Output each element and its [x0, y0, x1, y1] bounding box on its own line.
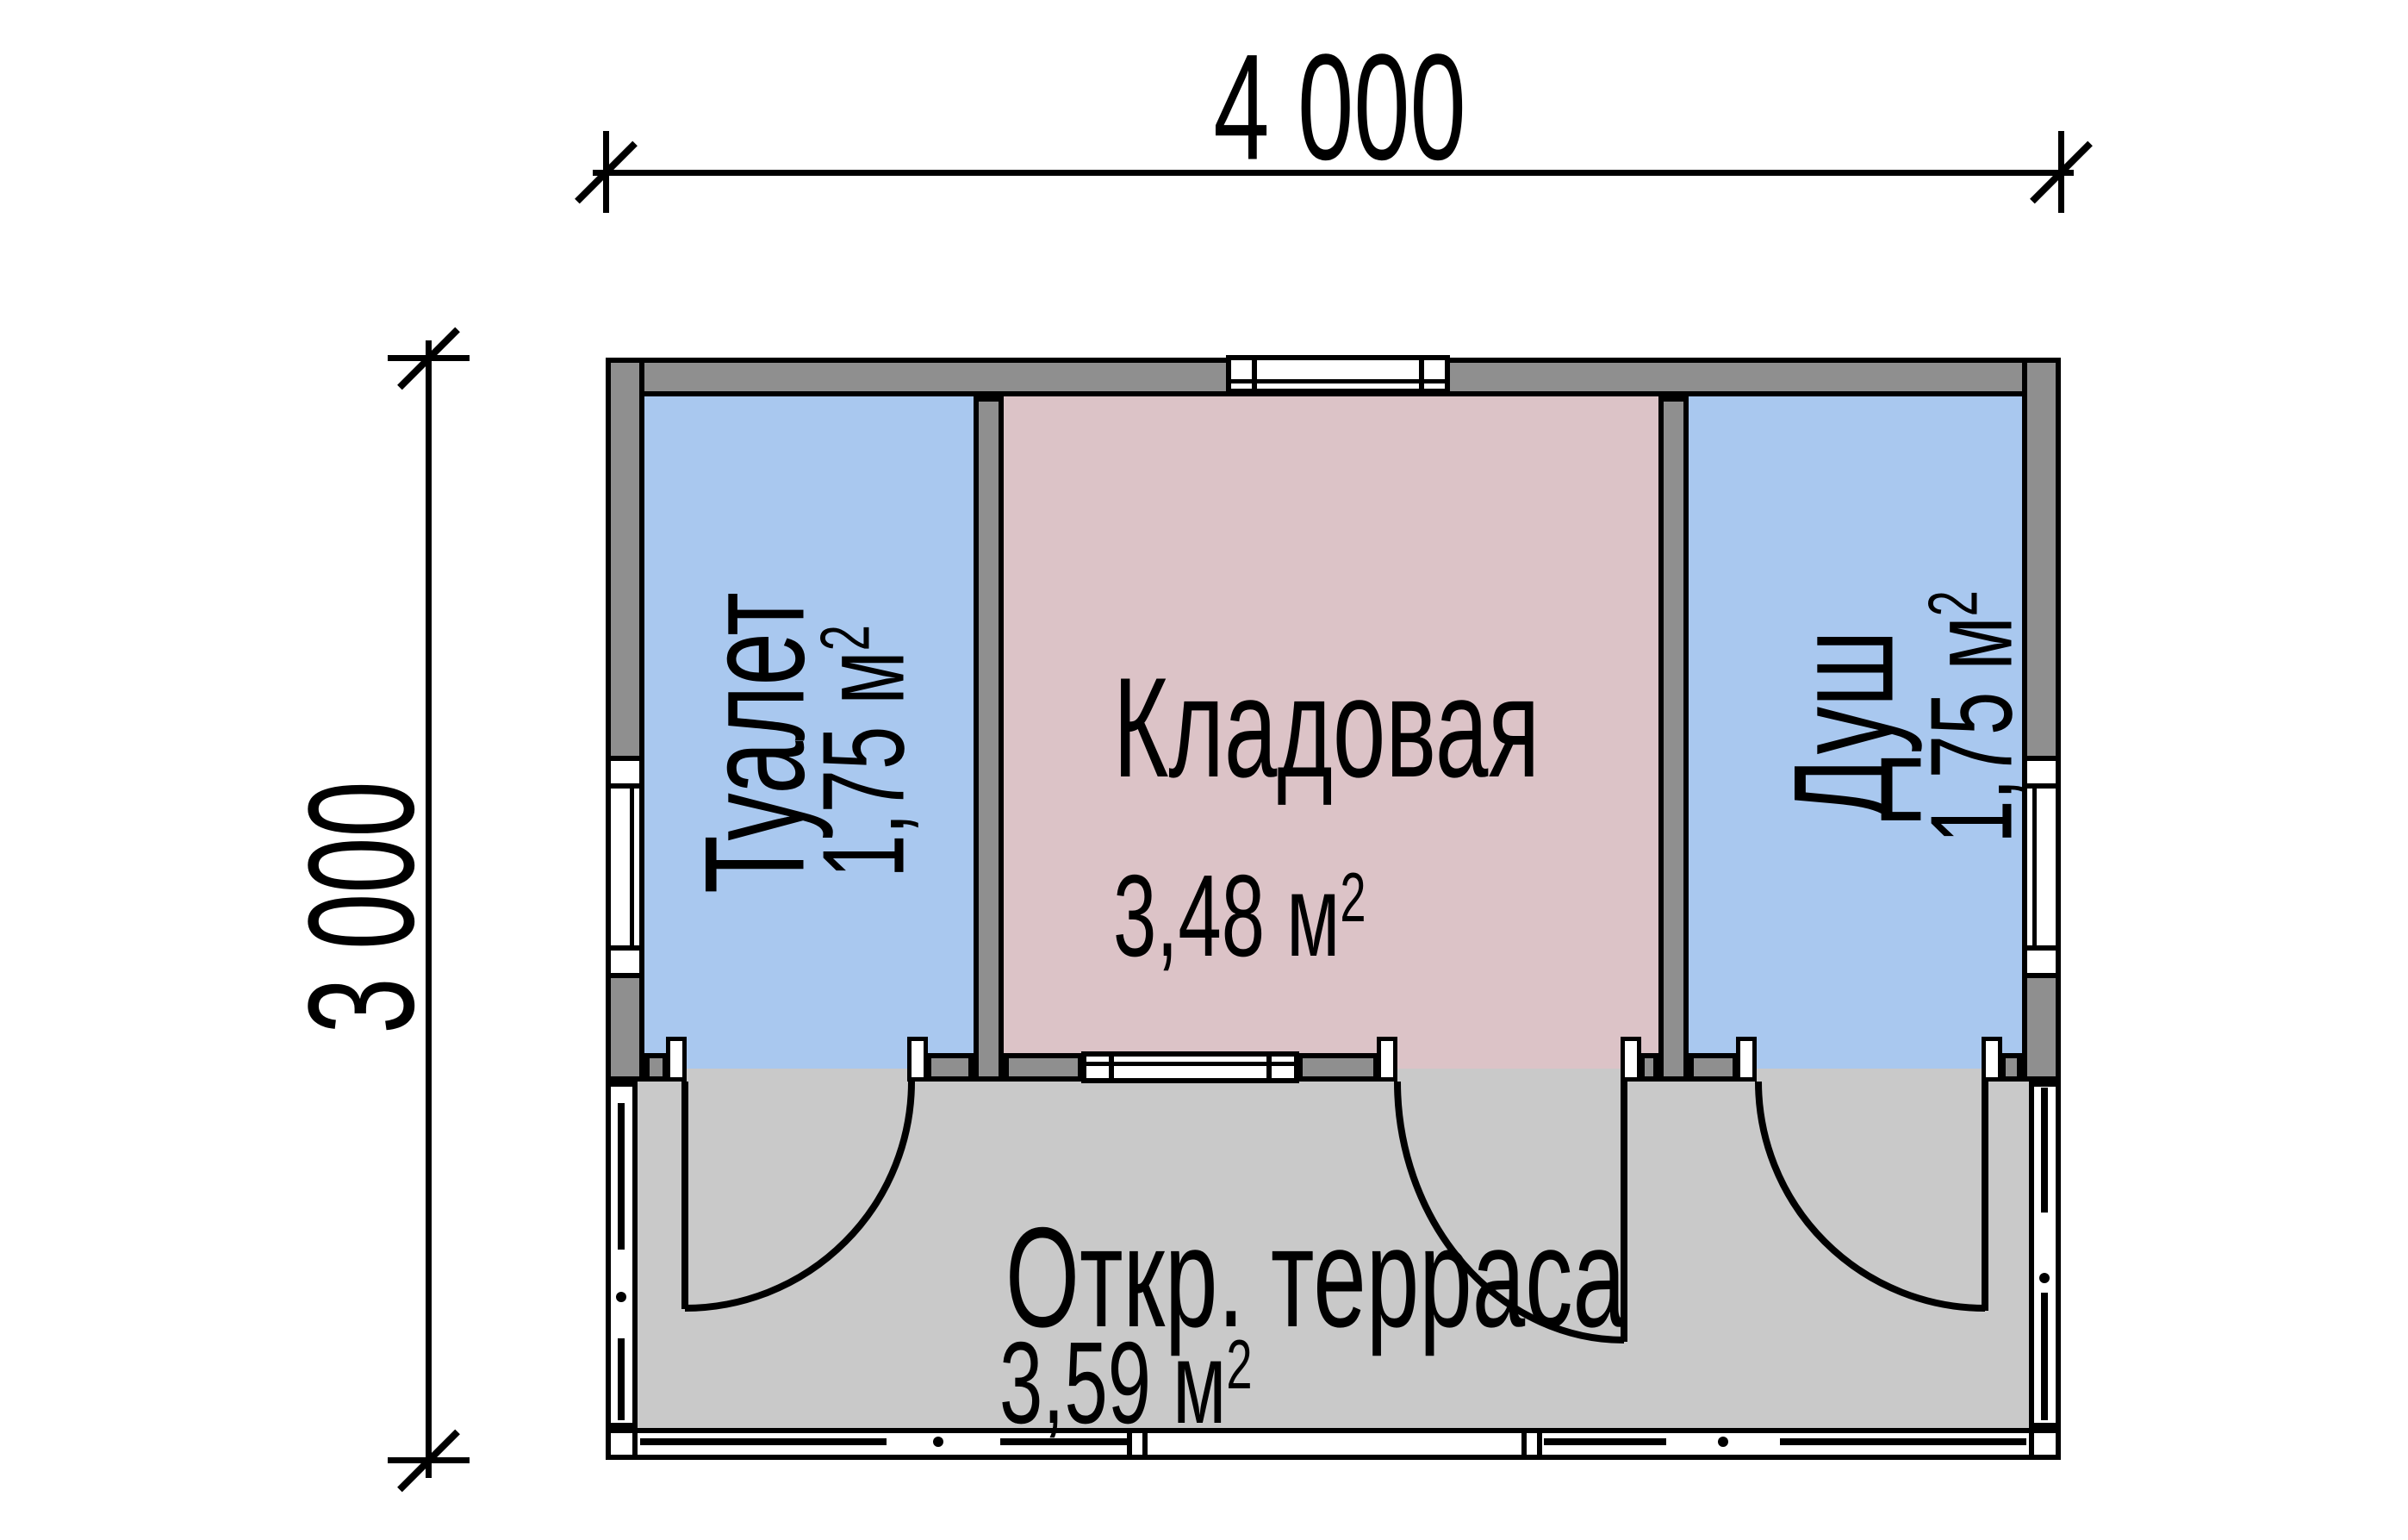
door-post [1621, 1037, 1641, 1082]
terrace-area: 3,59 м2 [999, 1325, 1253, 1441]
doorway-floor-storage-terr [1397, 1069, 1621, 1082]
superscript: 2 [806, 625, 884, 651]
door-post [666, 1037, 687, 1082]
window-mullion [1419, 360, 1424, 389]
window-glass-line [1086, 1062, 1294, 1066]
railing-dash [640, 1438, 887, 1445]
door-post [907, 1037, 928, 1082]
superscript: 2 [1914, 590, 1992, 616]
railing-dash [2041, 1088, 2048, 1213]
wall-bottom-segment [1297, 1053, 1378, 1082]
railing-dash [618, 1103, 625, 1250]
wall-bottom-segment [1640, 1053, 1658, 1082]
window-top [1226, 355, 1450, 394]
railing-dash [1544, 1438, 1666, 1445]
dimension-label-height: 3 000 [287, 781, 438, 1033]
railing-dot [933, 1437, 943, 1447]
room-shower-area: 1,75 м2 [1913, 590, 2030, 844]
window-mullion [611, 945, 639, 951]
room-storage-label: Кладовая [1113, 657, 1540, 799]
window-left [606, 756, 644, 978]
door-post [1736, 1037, 1757, 1082]
railing-dash [618, 1338, 625, 1420]
window-mullion [1252, 360, 1257, 389]
room-toilet-area: 1,75 м2 [806, 625, 922, 878]
window-glass-line [1231, 379, 1445, 383]
floor-plan-canvas: 4 000 3 000 [0, 0, 2408, 1540]
wall-bottom-segment [1004, 1053, 1083, 1082]
railing-post [2029, 1428, 2061, 1460]
railing-post [1521, 1428, 1542, 1460]
wall-partition-toilet-storage [974, 396, 1004, 1082]
doorway-floor-toilet-terr [687, 1069, 907, 1082]
window-mullion [2027, 945, 2056, 951]
superscript: 2 [1340, 859, 1366, 937]
wall-partition-storage-shower [1658, 396, 1689, 1082]
dimension-label-width: 4 000 [1213, 33, 1465, 184]
window-glass-line [630, 789, 634, 945]
railing-dash [1780, 1438, 2026, 1445]
doorway-floor-storage-room [1397, 1053, 1621, 1069]
window-mullion [1266, 1057, 1272, 1078]
door-post [1377, 1037, 1397, 1082]
doorway-floor-shower-terr [1757, 1069, 1982, 1082]
wall-bottom-segment [926, 1053, 974, 1082]
railing-dot [2039, 1273, 2050, 1283]
railing-post [606, 1428, 638, 1460]
railing-dash [2041, 1293, 2048, 1420]
doorway-floor-shower-room [1757, 1053, 1982, 1069]
wall-bottom-segment [2000, 1053, 2022, 1082]
wall-bottom-segment [644, 1053, 668, 1082]
railing-dot [616, 1292, 626, 1302]
door-leaf-toilet [681, 1082, 688, 1309]
railing-dot [1718, 1437, 1728, 1447]
superscript: 2 [1226, 1326, 1252, 1404]
window-mullion [611, 783, 639, 789]
door-post [1982, 1037, 2002, 1082]
door-leaf-shower [1982, 1082, 1988, 1311]
window-storage-bottom [1081, 1051, 1299, 1083]
window-mullion [1109, 1057, 1114, 1078]
room-storage-area: 3,48 м2 [1113, 857, 1366, 974]
wall-bottom-segment [1689, 1053, 1738, 1082]
doorway-floor-toilet-room [687, 1053, 907, 1069]
room-shower-label: Душ [1773, 630, 1915, 820]
